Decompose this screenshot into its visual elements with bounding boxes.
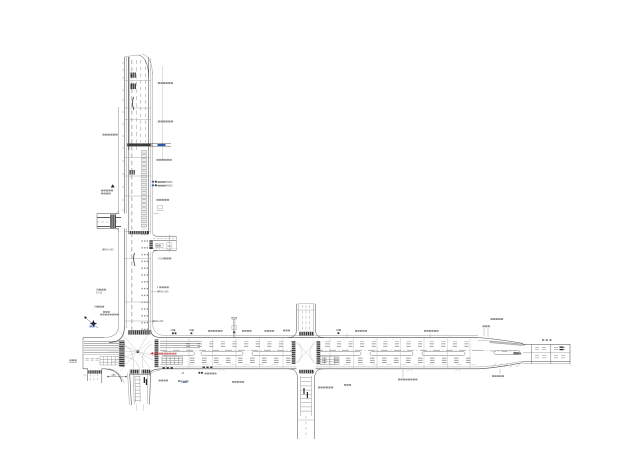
svg-text:K0+240: K0+240 [105,248,114,251]
svg-text:K0+360: K0+360 [181,380,190,383]
svg-text:JS-20: JS-20 [96,292,103,295]
svg-text:DN800: DN800 [165,182,173,184]
svg-text:K0+300: K0+300 [160,290,169,293]
svg-text:250: 250 [112,374,117,377]
svg-text:K0+332: K0+332 [155,320,164,323]
svg-text:K244: K244 [159,257,165,260]
svg-text:DN600: DN600 [165,186,173,188]
svg-text:2#: 2# [182,372,185,375]
